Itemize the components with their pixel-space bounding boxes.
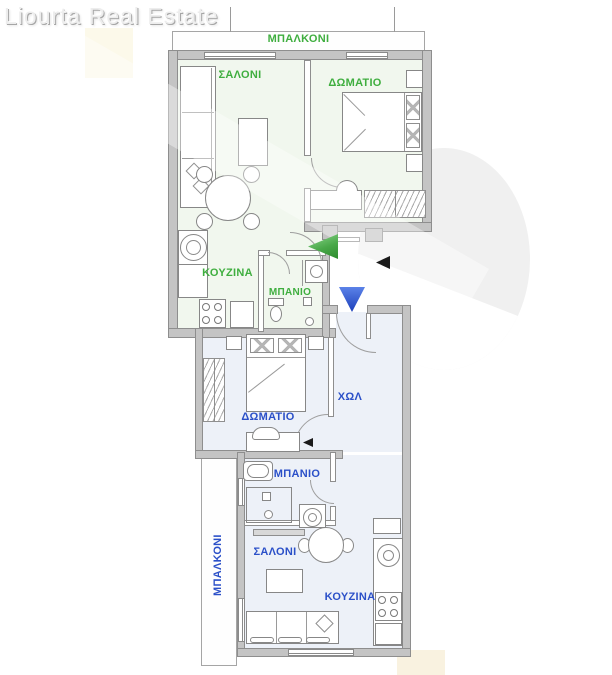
- nightstand: [308, 336, 324, 350]
- vanity-upper: [310, 190, 362, 210]
- label-balcony-left: ΜΠΑΛΚΟΝΙ: [203, 500, 233, 630]
- chair: [196, 166, 213, 183]
- burner: [214, 316, 222, 324]
- pillow: [406, 123, 420, 148]
- floor-plan: Liourta Real Estate: [0, 0, 612, 675]
- bed-line: [247, 357, 305, 358]
- window-top-right: [346, 52, 388, 59]
- burner: [390, 609, 398, 617]
- label-bedroom-upper: ΔΩΜΑΤΙΟ: [324, 77, 386, 89]
- bath2-sink-basin: [308, 513, 317, 522]
- bath2-fixture: [262, 492, 271, 501]
- kitchen2-cabinet-bottom: [375, 623, 402, 645]
- coffee-table-lower: [266, 569, 303, 593]
- bath1-fixture: [303, 297, 312, 306]
- burner: [378, 596, 386, 604]
- sofa-cushion-line: [182, 158, 214, 159]
- bed-headboard-line: [404, 93, 405, 151]
- sofa-seat-edge: [306, 637, 330, 643]
- label-living-lower: ΣΑΛΟΝΙ: [252, 546, 298, 558]
- label-hall: ΧΩΛ: [330, 391, 370, 403]
- burner: [214, 303, 222, 311]
- wardrobe-lower: [203, 358, 225, 422]
- window-balcony-upper: [238, 478, 245, 506]
- label-bath-upper: ΜΠΑΝΙΟ: [264, 287, 316, 298]
- toilet-bowl: [270, 306, 282, 322]
- pillow: [250, 338, 274, 353]
- shower-drain: [305, 317, 314, 326]
- page-title: Liourta Real Estate: [4, 3, 219, 30]
- balcony-rail-line: [230, 7, 231, 32]
- pillow: [406, 95, 420, 120]
- dining-table: [205, 175, 251, 221]
- wall-entry-pillar: [365, 228, 383, 242]
- kitchen2-sink-basin: [383, 550, 394, 561]
- round-table: [308, 527, 344, 563]
- toilet-tank: [268, 298, 284, 306]
- radiator-shelf: [253, 529, 305, 536]
- nightstand: [406, 154, 423, 172]
- nightstand: [226, 336, 242, 350]
- bedroom2-wall-right: [328, 337, 334, 417]
- chair: [196, 213, 213, 230]
- label-bedroom-lower: ΔΩΜΑΤΙΟ: [238, 411, 298, 423]
- window-top-left: [204, 52, 276, 59]
- burner: [202, 316, 210, 324]
- kitchen1-cabinet2: [230, 301, 254, 328]
- burner: [390, 596, 398, 604]
- bath2-wall-right-a: [330, 452, 336, 482]
- bath1-divider: [302, 260, 303, 286]
- sofa-cushion-line: [182, 112, 214, 113]
- balcony-rail-line: [394, 7, 395, 32]
- wall-left-middle: [195, 328, 203, 459]
- bathtub-basin: [247, 464, 269, 478]
- kitchen1-sink-basin: [186, 240, 201, 255]
- sofa-cushion-line: [276, 612, 277, 643]
- kitchen2-cabinet-top: [373, 518, 401, 534]
- nightstand: [406, 70, 423, 88]
- watermark-yellow-square: [85, 28, 133, 78]
- window-balcony-lower: [238, 598, 245, 642]
- chair: [243, 213, 260, 230]
- burner: [202, 303, 210, 311]
- sofa-seat-edge: [278, 637, 302, 643]
- washing-machine-drum: [310, 265, 323, 278]
- coffee-table-upper: [238, 118, 268, 166]
- bench-cushion: [252, 427, 280, 440]
- partition-saloni-bedroom: [304, 60, 311, 156]
- wardrobe-upper: [364, 190, 426, 218]
- label-kitchen-upper: ΚΟΥΖΙΝΑ: [200, 267, 255, 279]
- label-kitchen-lower: ΚΟΥΖΙΝΑ: [322, 591, 378, 603]
- window-bottom: [288, 649, 354, 656]
- sofa-seat-edge: [250, 637, 274, 643]
- label-balcony-top: ΜΠΑΛΚΟΝΙ: [172, 33, 425, 45]
- burner: [378, 609, 386, 617]
- shower-drain: [264, 510, 273, 519]
- chair: [243, 166, 260, 183]
- wall-right-lower: [402, 305, 411, 657]
- label-bath-lower: ΜΠΑΝΙΟ: [273, 468, 321, 480]
- pillow: [278, 338, 302, 353]
- wall-left-upper: [168, 50, 178, 337]
- label-living-upper: ΣΑΛΟΝΙ: [205, 69, 275, 81]
